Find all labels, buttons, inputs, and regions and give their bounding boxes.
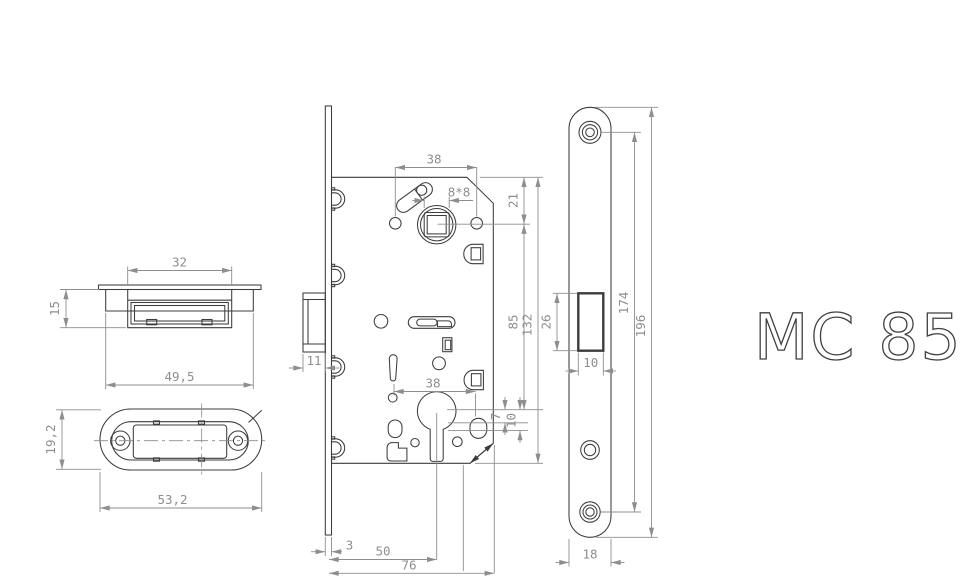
dim-label: 76	[401, 558, 416, 573]
dim-label: 18	[582, 547, 597, 562]
dim-label: 26	[539, 314, 554, 329]
dim-label: 85	[506, 314, 521, 329]
dim-label: 49,5	[164, 369, 194, 384]
dim-label: 32	[172, 255, 187, 270]
model-title: MC 85	[754, 301, 963, 374]
dim-label: 50	[375, 544, 390, 559]
dim-label: 15	[47, 301, 62, 316]
dim-label: 19,2	[43, 424, 58, 454]
dim-label: 7	[488, 413, 503, 421]
technical-drawing-canvas: 32 49,5 15 53,2	[0, 0, 970, 579]
dim-label: 132	[520, 314, 535, 337]
dim-label: 3	[346, 538, 354, 553]
dim-label: 38	[426, 152, 441, 167]
dim-label: 21	[506, 193, 521, 208]
dim-label: 196	[633, 315, 648, 338]
dim-label: 174	[616, 292, 631, 315]
dim-label: 11	[306, 353, 321, 368]
dim-label: 38	[425, 376, 440, 391]
dim-label: 10	[583, 355, 598, 370]
dim-label: 10	[504, 413, 519, 428]
dim-label: 53,2	[157, 492, 187, 507]
dim-label: 8*8	[448, 185, 471, 200]
